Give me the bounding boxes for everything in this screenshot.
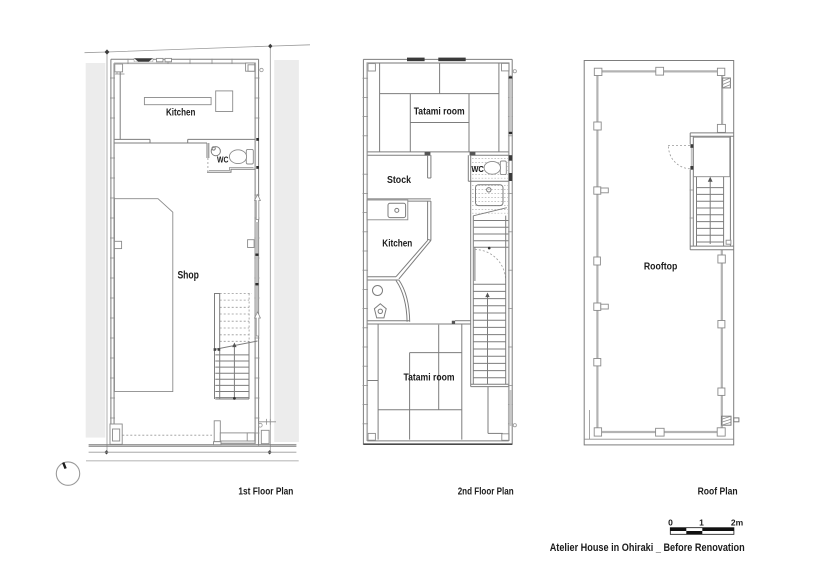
svg-text:Kitchen: Kitchen: [166, 107, 196, 118]
svg-text:WC: WC: [217, 154, 229, 164]
svg-text:2m: 2m: [731, 518, 744, 528]
svg-text:Tatami room: Tatami room: [404, 372, 455, 383]
svg-text:Kitchen: Kitchen: [382, 239, 412, 250]
svg-text:Atelier House in Ohiraki _ Bef: Atelier House in Ohiraki _ Before Renova…: [550, 542, 745, 554]
svg-text:2nd Floor Plan: 2nd Floor Plan: [458, 487, 514, 498]
svg-text:1st Floor Plan: 1st Floor Plan: [238, 487, 293, 498]
svg-text:Stock: Stock: [387, 175, 411, 186]
svg-text:Tatami room: Tatami room: [414, 107, 465, 118]
svg-text:0: 0: [668, 518, 673, 528]
svg-text:WC: WC: [471, 164, 484, 174]
svg-text:1: 1: [699, 518, 704, 528]
svg-text:Shop: Shop: [177, 269, 199, 281]
svg-text:Rooftop: Rooftop: [644, 262, 678, 273]
svg-text:Roof Plan: Roof Plan: [698, 487, 738, 498]
